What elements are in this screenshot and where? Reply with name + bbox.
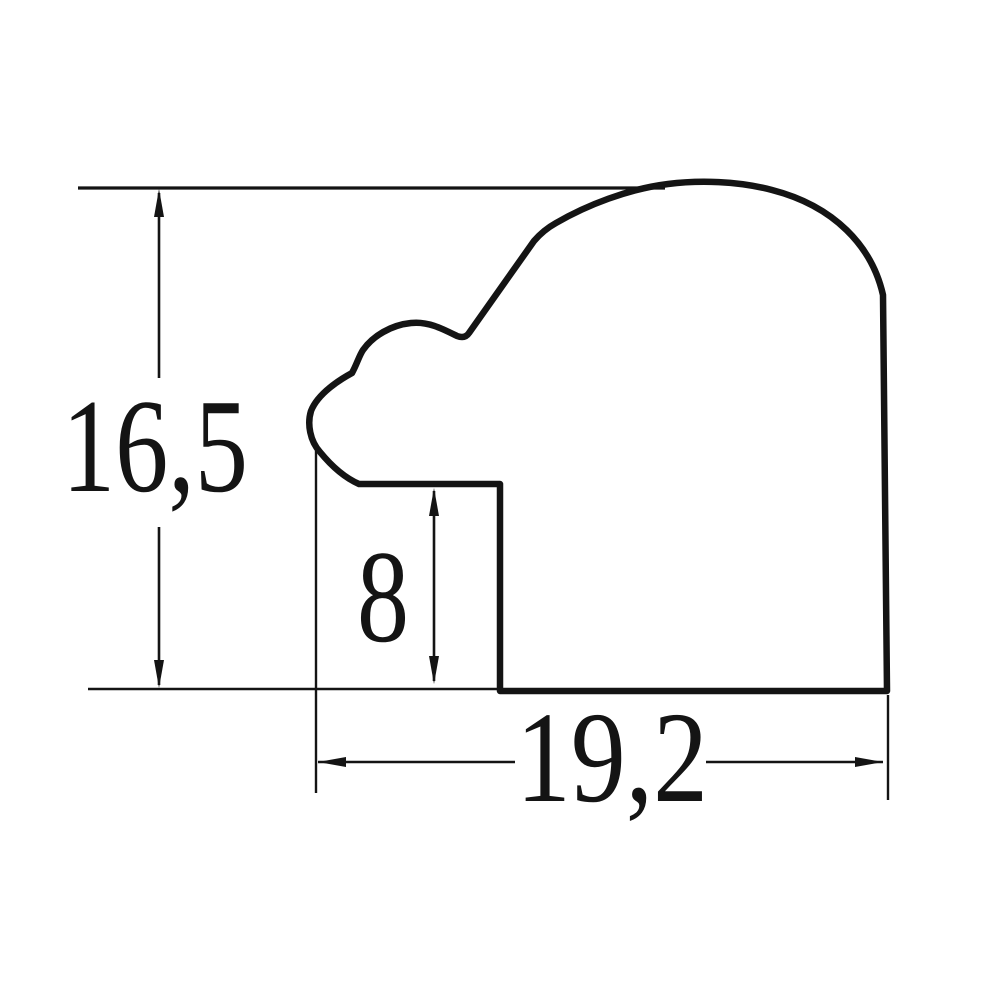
technical-drawing-canvas: 16,5 8 19,2 — [0, 0, 1000, 1000]
arrow-right-icon — [855, 757, 883, 767]
drawing-page: 16,5 8 19,2 — [0, 0, 1000, 1000]
arrow-down-icon — [154, 660, 164, 688]
width-dimension-label: 19,2 — [516, 686, 708, 830]
rabbet-dimension-label: 8 — [357, 523, 409, 670]
arrow-up-icon — [429, 488, 439, 516]
arrow-left-icon — [318, 757, 346, 767]
height-dimension-label: 16,5 — [62, 372, 248, 520]
arrow-down-icon — [429, 656, 439, 684]
arrow-up-icon — [154, 189, 164, 217]
